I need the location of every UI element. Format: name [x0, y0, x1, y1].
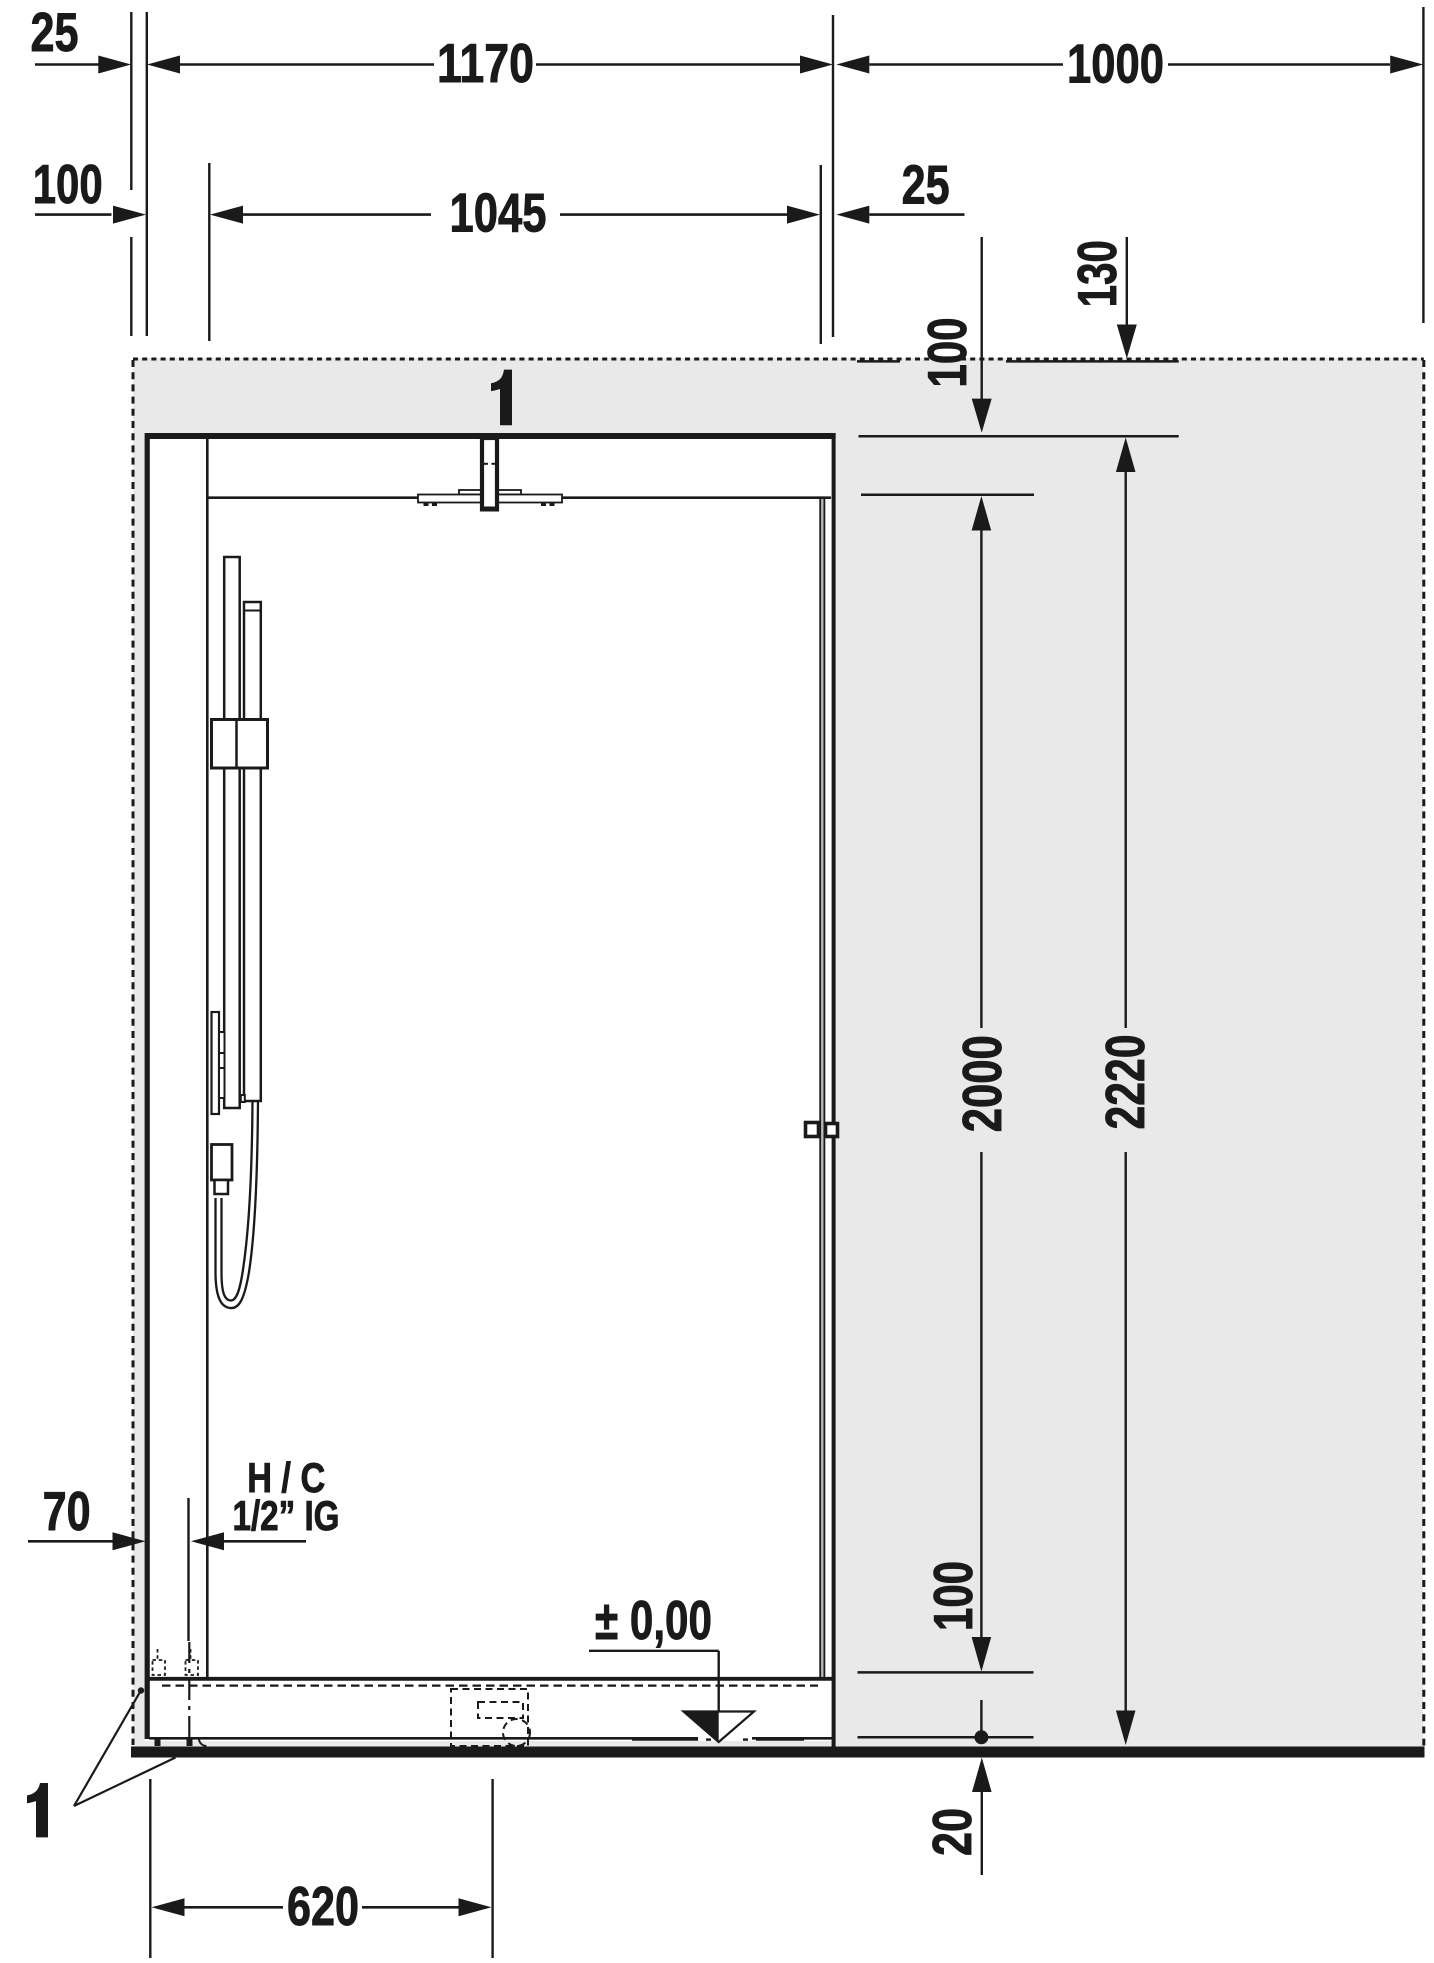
svg-text:20: 20: [922, 1808, 983, 1856]
svg-text:1045: 1045: [450, 183, 547, 244]
svg-text:± 0,00: ± 0,00: [595, 1590, 712, 1651]
svg-text:100: 100: [33, 154, 103, 215]
svg-text:620: 620: [287, 1876, 359, 1937]
svg-text:1170: 1170: [437, 33, 534, 94]
svg-text:100: 100: [923, 1561, 984, 1631]
svg-text:25: 25: [31, 2, 79, 63]
svg-text:25: 25: [902, 155, 950, 216]
svg-text:100: 100: [917, 318, 978, 388]
svg-text:2000: 2000: [952, 1035, 1013, 1132]
svg-text:130: 130: [1067, 240, 1128, 307]
svg-text:1/2” IG: 1/2” IG: [233, 1492, 340, 1539]
svg-text:70: 70: [43, 1481, 91, 1542]
svg-text:2220: 2220: [1095, 1035, 1156, 1130]
svg-text:1000: 1000: [1067, 34, 1164, 95]
